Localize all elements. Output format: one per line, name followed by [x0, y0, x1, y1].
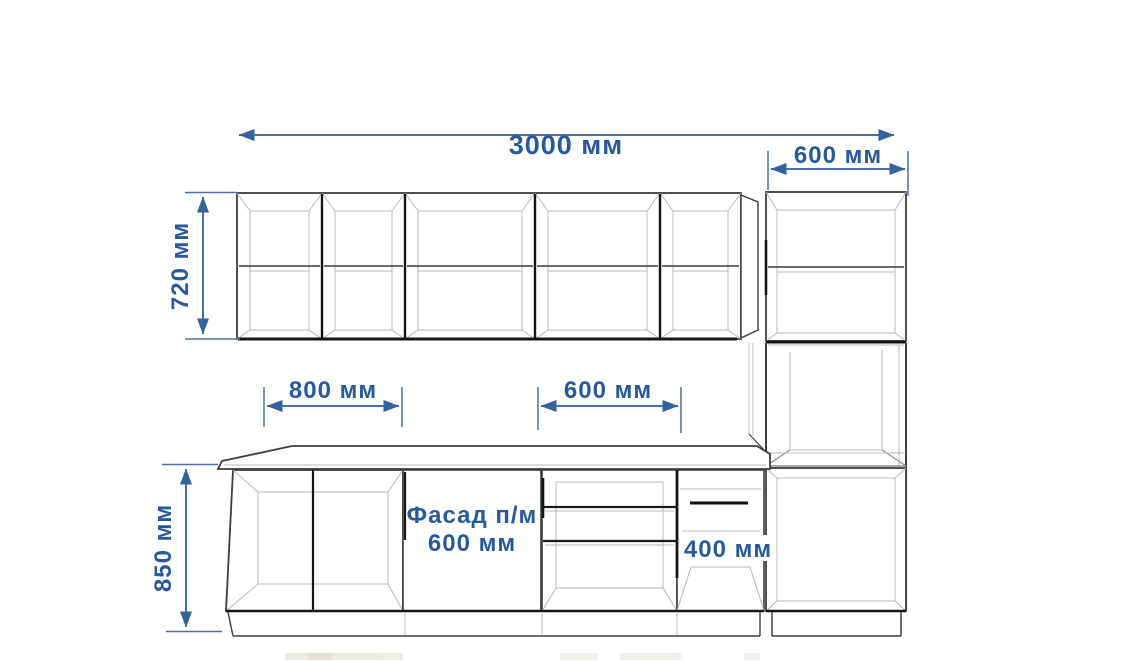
dim-tall-cabinet-width-label: 600 мм [794, 142, 882, 169]
dim-base-400-label: 400 мм [684, 536, 772, 563]
wall-cabinet-run [237, 193, 758, 339]
facade-note-line2: 600 мм [428, 530, 516, 557]
dim-base-400: 400 мм [684, 535, 772, 563]
diagram-canvas: 3000 мм 600 мм 720 мм 850 мм 800 мм 600 … [0, 0, 1123, 661]
dim-tall-cabinet-width: 600 мм [768, 142, 908, 196]
dim-wall-height: 720 мм [167, 193, 240, 340]
countertop [218, 446, 770, 469]
kitchen-elevation-diagram: 3000 мм 600 мм 720 мм 850 мм 800 мм 600 … [0, 0, 1123, 661]
dim-base-height: 850 мм [150, 465, 222, 632]
construction-lines [749, 343, 766, 452]
dim-wall-height-label: 720 мм [167, 222, 194, 310]
dim-base-800-label: 800 мм [289, 377, 377, 404]
facade-note-line1: Фасад п/м [407, 502, 538, 529]
dim-base-800: 800 мм [264, 377, 402, 427]
dim-base-600-label: 600 мм [564, 377, 652, 404]
tall-cabinet [766, 192, 906, 636]
dim-base-600: 600 мм [538, 377, 681, 433]
dim-base-height-label: 850 мм [150, 504, 177, 592]
cropped-caption-remnant [285, 653, 760, 660]
dim-total-width-label: 3000 мм [509, 130, 624, 160]
